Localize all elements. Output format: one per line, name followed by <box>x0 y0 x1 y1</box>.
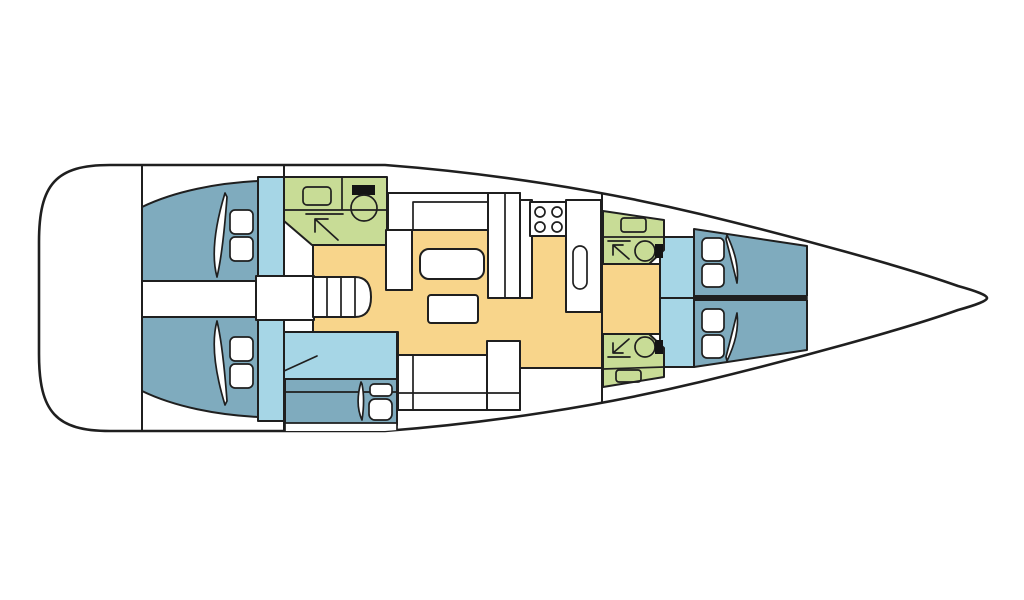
stove <box>530 202 567 236</box>
toilet-tank-icon <box>352 185 375 195</box>
galley-counter <box>566 200 601 312</box>
companionway-stairs <box>313 277 371 317</box>
forward-cabins-entry <box>660 237 694 367</box>
skipper-berth <box>284 332 397 433</box>
toilet-tank-icon <box>655 244 663 258</box>
bed-pillow-icon <box>702 309 724 332</box>
aft-cabin-port-entry <box>258 177 284 277</box>
companionway-landing <box>256 276 314 320</box>
bed-pillow-icon <box>702 238 724 261</box>
bed-pillow-icon <box>230 210 253 234</box>
toilet-tank-icon <box>655 340 663 354</box>
table-icon <box>420 249 484 279</box>
aft-head <box>284 177 387 245</box>
bed-pillow-icon <box>230 237 253 261</box>
bed-pillow-icon <box>369 399 392 420</box>
forward-head-port <box>603 211 664 264</box>
table-icon <box>428 295 478 323</box>
stairs-icon <box>313 277 371 317</box>
nav-seat <box>487 341 520 410</box>
aft-cabin-starboard-entry <box>258 318 284 421</box>
yacht-floorplan <box>0 0 1024 600</box>
bed-pillow-icon <box>702 335 724 358</box>
settee-left-arm <box>386 230 412 290</box>
bed-pillow-icon <box>230 364 253 388</box>
forward-head-starboard-room <box>603 334 664 387</box>
bed-pillow-icon <box>230 337 253 361</box>
bed-pillow-icon <box>702 264 724 287</box>
settee-right <box>488 193 520 298</box>
yacht-floorplan-canvas <box>0 0 1024 600</box>
bed-pillow-icon <box>370 384 392 396</box>
forward-corridor-floor <box>602 264 660 334</box>
forward-head-starboard <box>603 334 664 387</box>
